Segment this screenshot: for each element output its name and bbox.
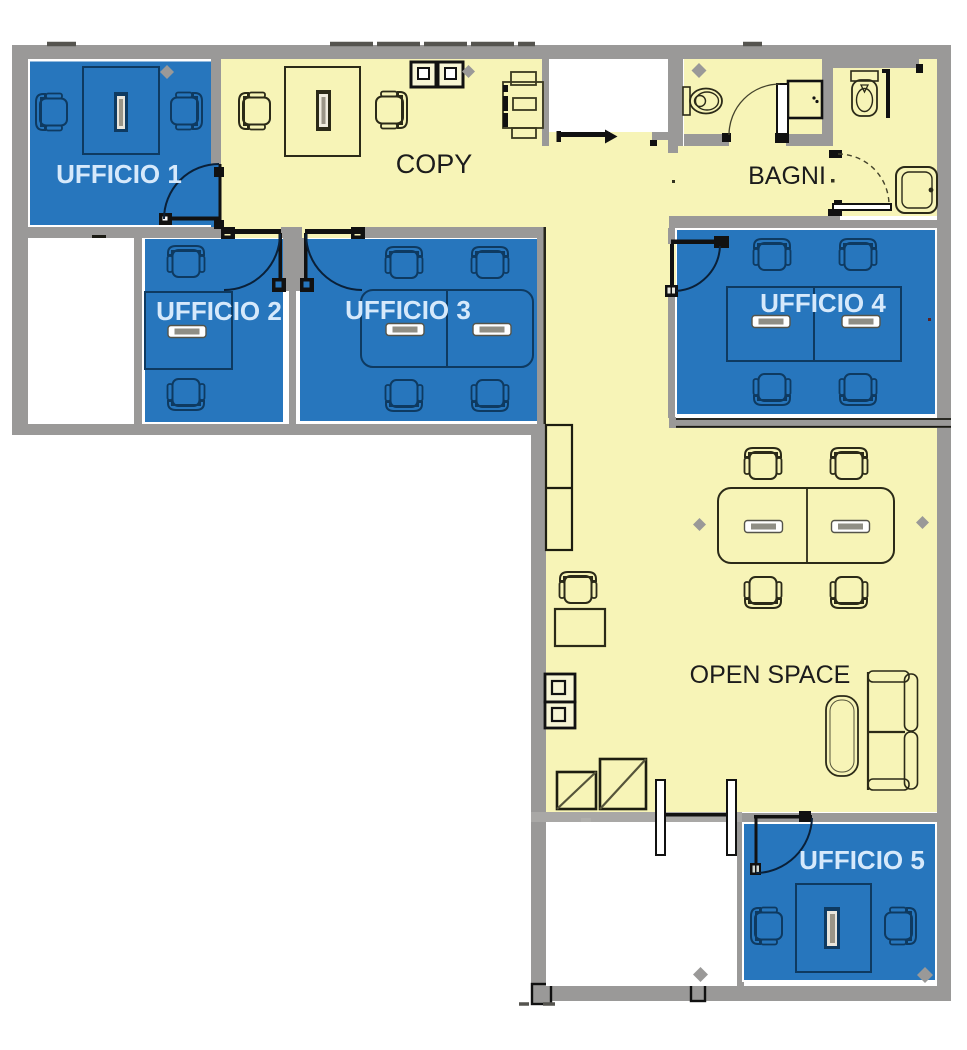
svg-text:BAGNI: BAGNI [748,162,826,190]
svg-text:UFFICIO 5: UFFICIO 5 [799,845,925,875]
svg-text:UFFICIO 1: UFFICIO 1 [56,159,182,189]
svg-text:UFFICIO 3: UFFICIO 3 [345,295,471,325]
svg-text:OPEN SPACE: OPEN SPACE [690,661,851,689]
svg-text:COPY: COPY [396,149,473,179]
svg-text:UFFICIO 2: UFFICIO 2 [156,296,282,326]
svg-text:UFFICIO 4: UFFICIO 4 [760,288,886,318]
